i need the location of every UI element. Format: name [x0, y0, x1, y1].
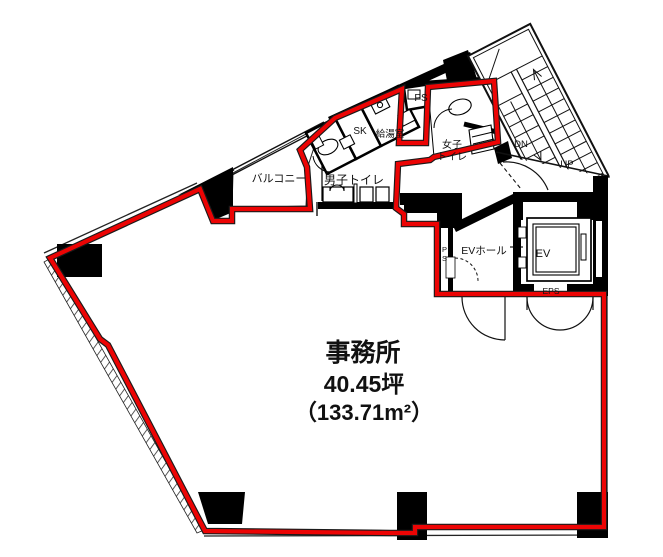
floorplan-drawing: バルコニー 男子トイレ SK 給湯室 PS 女子 トイレ P S EVホール E…	[0, 0, 663, 557]
ev-door-jamb-bottom	[518, 257, 526, 268]
sink-2	[376, 187, 389, 202]
ev-hall-door-arc	[455, 258, 478, 281]
urinal-unit	[323, 187, 353, 202]
sink-1	[360, 187, 373, 202]
ps-wall-label-s: S	[442, 254, 447, 263]
ev-handrail	[581, 234, 586, 260]
double-door-right	[560, 297, 593, 330]
ev-hall-label: EVホール	[461, 245, 507, 257]
sk-label: SK	[353, 126, 367, 137]
womens-toilet-label-2: トイレ	[437, 152, 467, 163]
floorplan-canvas: バルコニー 男子トイレ SK 給湯室 PS 女子 トイレ P S EVホール E…	[0, 0, 663, 557]
kitchenette-label: 給湯室	[376, 128, 405, 140]
womens-toilet-label-1: 女子	[442, 138, 462, 151]
office-area-tsubo: 40.45坪	[324, 371, 405, 397]
stairs-dn-label: DN	[514, 139, 528, 150]
ps-top-label: PS	[414, 93, 428, 104]
single-door-arc	[462, 297, 505, 340]
mens-toilet-label: 男子トイレ	[324, 173, 384, 187]
ev-label: EV	[536, 248, 551, 260]
hatched-wall	[44, 258, 204, 533]
office-name: 事務所	[325, 339, 400, 367]
stair-landing-door	[500, 162, 548, 190]
office-area-sqm: （133.71m²）	[295, 400, 433, 425]
elevator-shaft	[510, 176, 608, 296]
ps-wall-label-p: P	[442, 245, 447, 254]
stairs-up-label: UP	[560, 159, 573, 170]
ev-door-jamb-top	[518, 227, 526, 238]
office-doors	[462, 297, 593, 340]
wall-ev-hall-top	[452, 193, 519, 232]
balcony-label: バルコニー	[252, 172, 307, 185]
pillar-bottom-left	[198, 492, 245, 524]
double-door-left	[527, 297, 560, 330]
eps-label: EPS	[542, 286, 559, 296]
